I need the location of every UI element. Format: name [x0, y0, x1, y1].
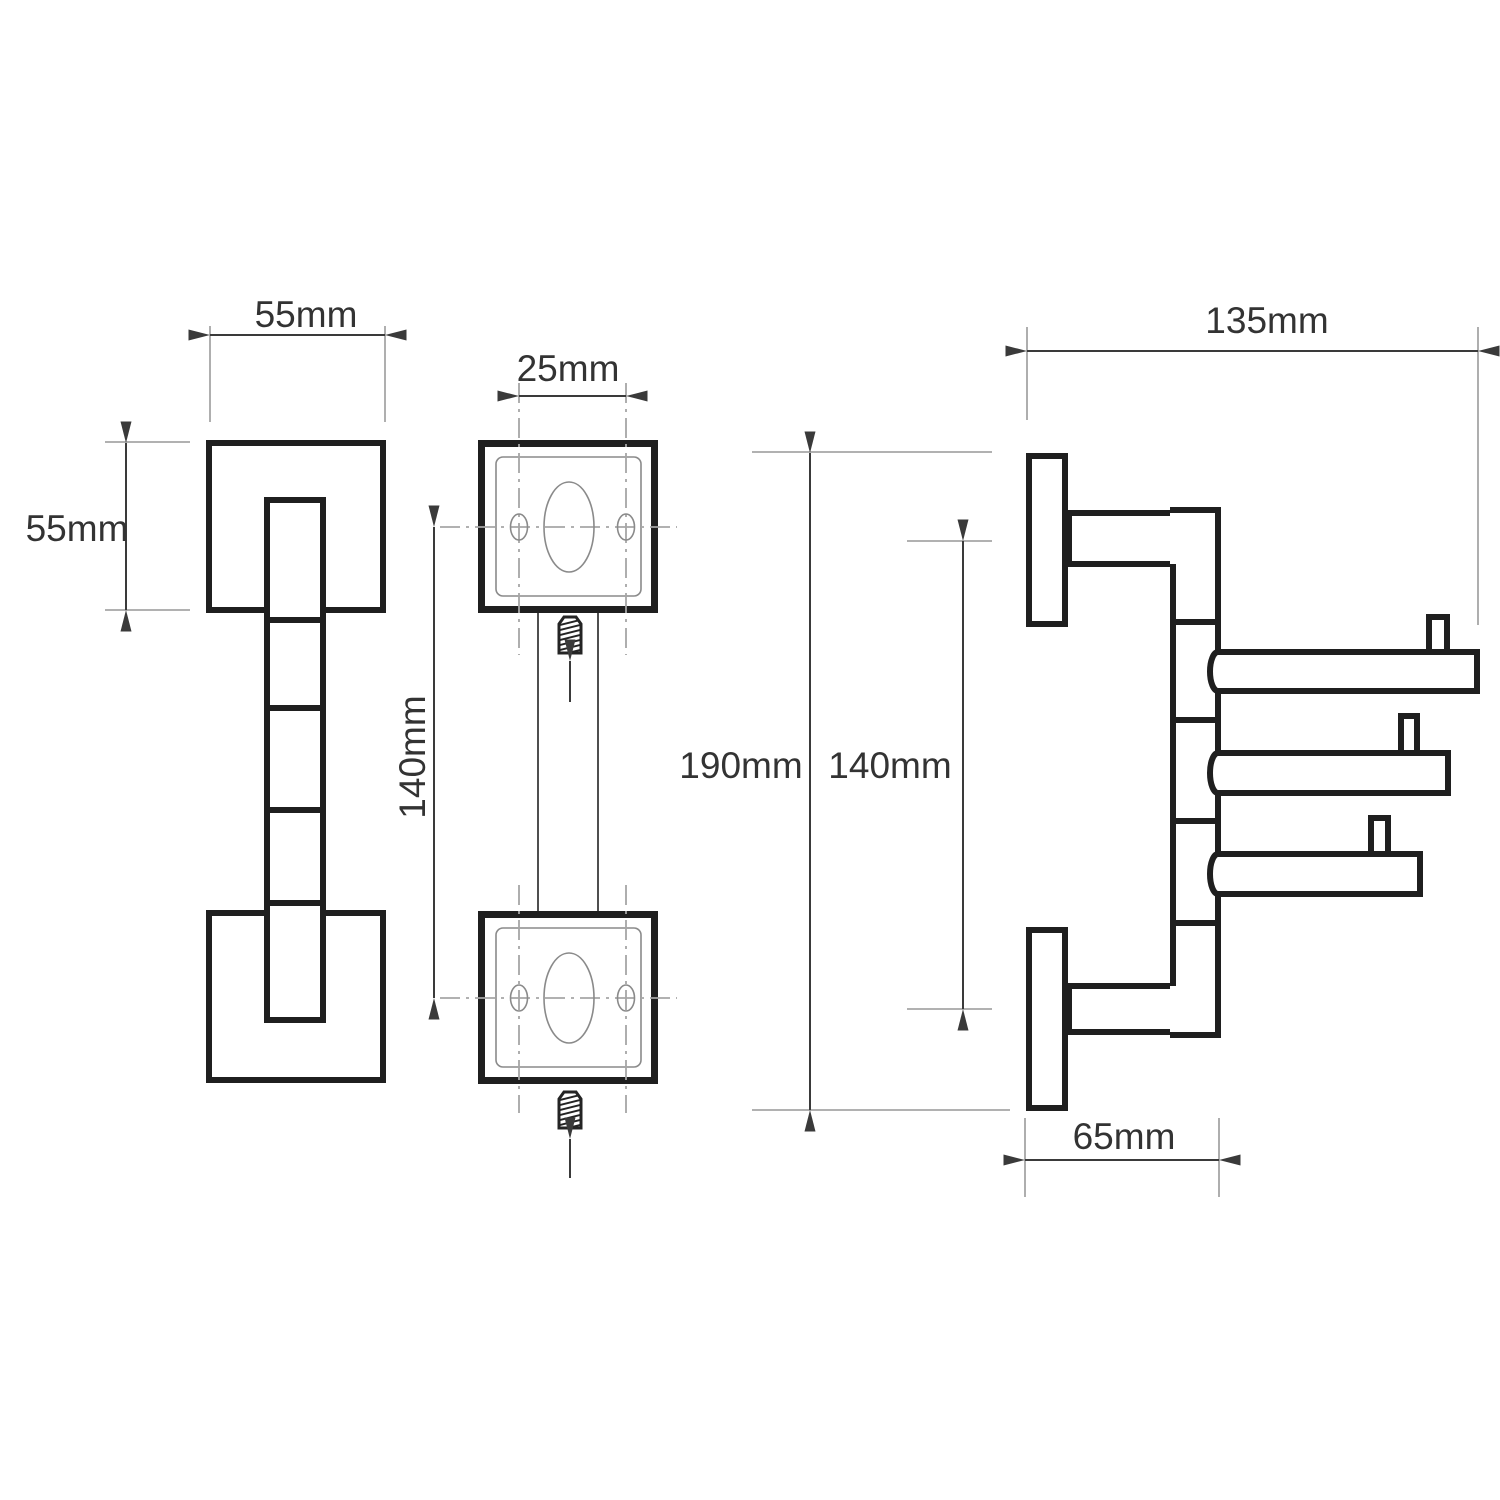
front-height-label: 55mm: [26, 508, 129, 549]
wall-plate-bottom-side: [1029, 930, 1065, 1108]
side-view: 135mm 190mm 140mm: [679, 300, 1478, 1197]
front-width-label: 55mm: [255, 294, 358, 335]
plate-distance-dimension: 140mm: [392, 527, 434, 998]
grub-screw-bottom: [556, 1092, 584, 1178]
hook-arm-1: [1210, 617, 1477, 691]
depth-dimension: 135mm: [1027, 300, 1478, 625]
hook-arm-3: [1210, 818, 1420, 894]
hole-spacing-label: 25mm: [517, 348, 620, 389]
dimension-drawing: 55mm 55mm: [0, 0, 1500, 1500]
hook-arm-2: [1210, 716, 1448, 793]
front-height-dimension: 55mm: [26, 442, 190, 610]
bracket-distance-label: 140mm: [828, 745, 951, 786]
hole-spacing-dimension: 25mm: [517, 348, 626, 396]
grub-screw-top: [556, 617, 584, 702]
front-view: 55mm 55mm: [26, 294, 385, 1080]
mounting-view: 25mm 140mm: [392, 348, 677, 1178]
plate-distance-label: 140mm: [392, 695, 433, 818]
wall-offset-dimension: 65mm: [1025, 1116, 1219, 1197]
wall-offset-label: 65mm: [1073, 1116, 1176, 1157]
arm-bar: [1210, 652, 1477, 691]
depth-label: 135mm: [1205, 300, 1328, 341]
arm-bar: [1210, 854, 1420, 894]
swivel-post-front: [267, 500, 323, 1020]
wall-plate-top-side: [1029, 456, 1065, 624]
front-width-dimension: 55mm: [210, 294, 385, 422]
bracket-distance-dimension: 140mm: [828, 541, 992, 1009]
total-height-label: 190mm: [679, 745, 802, 786]
arm-bar: [1210, 753, 1448, 793]
technical-drawing-canvas: 55mm 55mm: [0, 0, 1500, 1500]
